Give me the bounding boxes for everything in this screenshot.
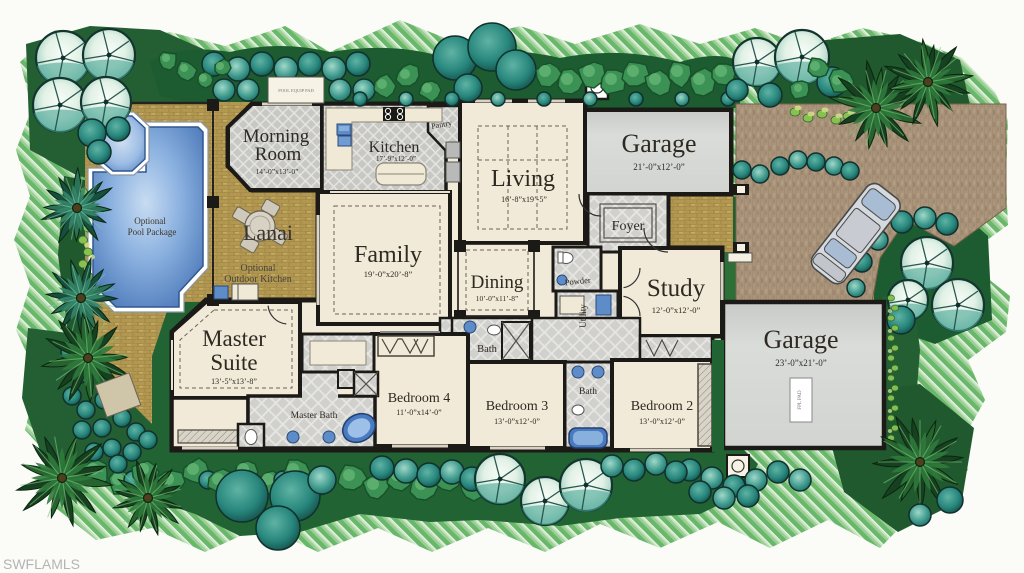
svg-text:Bath: Bath bbox=[477, 344, 498, 355]
svg-text:13’-5”x13’-8”: 13’-5”x13’-8” bbox=[211, 377, 257, 386]
svg-text:Foyer: Foyer bbox=[612, 219, 645, 234]
svg-text:Master: Master bbox=[202, 326, 266, 351]
svg-text:Pool Package: Pool Package bbox=[128, 227, 177, 237]
svg-text:Kitchen: Kitchen bbox=[369, 139, 420, 156]
svg-text:Optional: Optional bbox=[241, 263, 276, 274]
svg-text:SWFLAMLS: SWFLAMLS bbox=[3, 556, 80, 572]
svg-text:Family: Family bbox=[354, 242, 422, 268]
svg-text:Study: Study bbox=[647, 275, 706, 302]
svg-text:Outdoor Kitchen: Outdoor Kitchen bbox=[224, 274, 292, 285]
svg-text:FPL PAD: FPL PAD bbox=[798, 390, 803, 410]
svg-text:23’-0”x21’-0”: 23’-0”x21’-0” bbox=[775, 358, 826, 368]
svg-text:Bedroom 4: Bedroom 4 bbox=[388, 391, 451, 406]
svg-text:19’-0”x20’-8”: 19’-0”x20’-8” bbox=[364, 269, 413, 279]
svg-text:13’-0”x12’-0”: 13’-0”x12’-0” bbox=[639, 417, 685, 426]
svg-text:Dining: Dining bbox=[471, 272, 524, 293]
svg-text:21’-0”x12’-0”: 21’-0”x12’-0” bbox=[633, 162, 684, 172]
svg-text:Bedroom 3: Bedroom 3 bbox=[486, 399, 549, 414]
svg-text:Garage: Garage bbox=[763, 325, 838, 354]
svg-text:Utility: Utility bbox=[578, 304, 588, 328]
svg-text:12’-0”x12’-0”: 12’-0”x12’-0” bbox=[652, 305, 701, 315]
svg-text:Lanai: Lanai bbox=[243, 220, 293, 245]
svg-text:17’-9”x12’-0”: 17’-9”x12’-0” bbox=[376, 155, 416, 163]
svg-text:Bath: Bath bbox=[579, 387, 597, 397]
svg-text:Bedroom 2: Bedroom 2 bbox=[631, 399, 694, 414]
svg-text:16’-8”x19’-5”: 16’-8”x19’-5” bbox=[501, 195, 547, 204]
svg-text:Room: Room bbox=[255, 144, 302, 165]
svg-text:Suite: Suite bbox=[210, 350, 257, 375]
svg-text:Master Bath: Master Bath bbox=[291, 411, 338, 421]
svg-text:14’-0”x13’-0”: 14’-0”x13’-0” bbox=[256, 167, 299, 176]
svg-text:POOL EQUIP PAD: POOL EQUIP PAD bbox=[278, 88, 314, 93]
svg-text:10’-0”x11’-8”: 10’-0”x11’-8” bbox=[476, 294, 519, 303]
svg-text:Optional: Optional bbox=[134, 216, 166, 226]
svg-text:13’-0”x12’-0”: 13’-0”x12’-0” bbox=[494, 417, 540, 426]
svg-text:11’-0”x14’-0”: 11’-0”x14’-0” bbox=[396, 408, 442, 417]
svg-text:Garage: Garage bbox=[621, 129, 696, 158]
svg-text:Living: Living bbox=[491, 166, 555, 192]
